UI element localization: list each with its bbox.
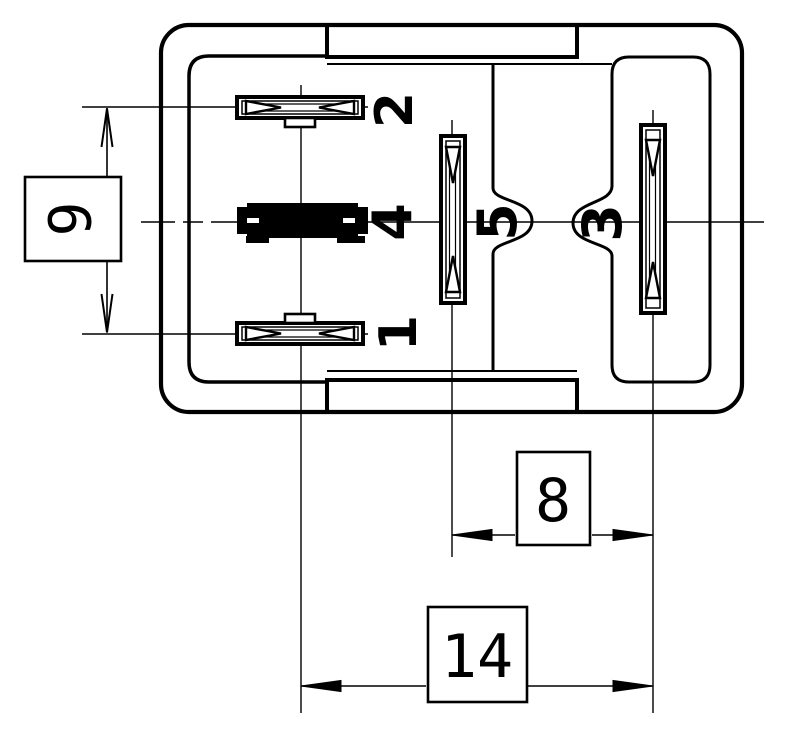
pin-4-label: 4	[361, 203, 424, 241]
drawing-page: 9 8 14 2 1 4 5 3	[0, 0, 800, 744]
relay-footprint-drawing: 9 8 14 2 1 4 5 3	[0, 0, 800, 744]
dim-9-value: 9	[36, 202, 104, 237]
pin-1-key-bump	[285, 314, 315, 323]
dim-8-value: 8	[535, 466, 571, 536]
pin-1-label: 1	[369, 315, 429, 351]
dimension-8: 8	[452, 452, 653, 545]
pin-2-terminal	[237, 97, 363, 127]
pin-4-left-cap	[237, 207, 248, 234]
pin-4-terminal	[237, 203, 368, 243]
pin-5-terminal	[441, 136, 465, 303]
pin-3-label: 3	[571, 204, 634, 242]
pin-labels: 2 1 4 5 3	[361, 92, 634, 351]
pin-5-label: 5	[466, 203, 529, 241]
pin-4-left-slit	[247, 218, 259, 223]
dim-14-value: 14	[441, 622, 513, 692]
pin-4-left-foot	[246, 236, 269, 243]
pin-3-terminal	[641, 125, 665, 313]
dim-8-arrow-right	[613, 530, 653, 541]
pin-4-blade-body	[247, 203, 358, 238]
dim-14-arrow-right	[613, 681, 653, 692]
top-tab-notch	[327, 26, 577, 57]
pin-4-right-slit	[343, 218, 355, 223]
pin-2-label: 2	[365, 92, 425, 128]
dim-14-arrow-left	[301, 681, 341, 692]
pin-1-terminal	[237, 314, 363, 344]
dim-8-arrow-left	[452, 530, 492, 541]
pin-2-key-bump	[285, 118, 315, 127]
dimension-14: 14	[301, 607, 653, 702]
dimension-9: 9	[25, 108, 121, 333]
